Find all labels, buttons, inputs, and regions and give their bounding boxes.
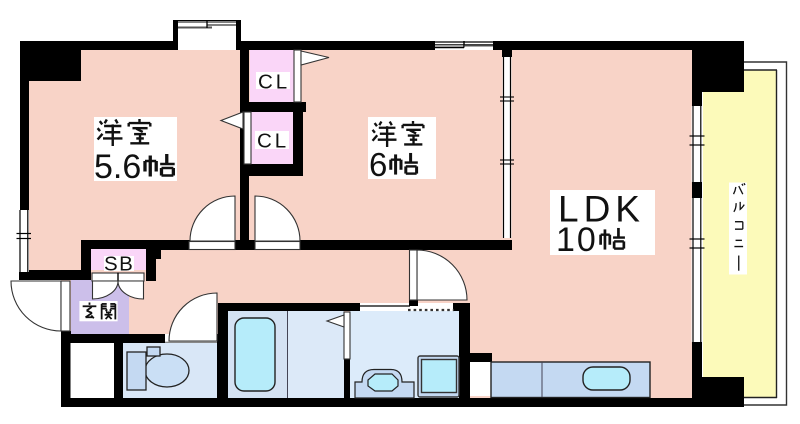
svg-text:5.6: 5.6 xyxy=(94,148,141,186)
svg-text:SB: SB xyxy=(104,253,134,276)
svg-text:CL: CL xyxy=(257,130,289,153)
svg-text:10: 10 xyxy=(556,221,598,259)
svg-text:6: 6 xyxy=(369,146,387,183)
svg-text:CL: CL xyxy=(258,71,290,94)
